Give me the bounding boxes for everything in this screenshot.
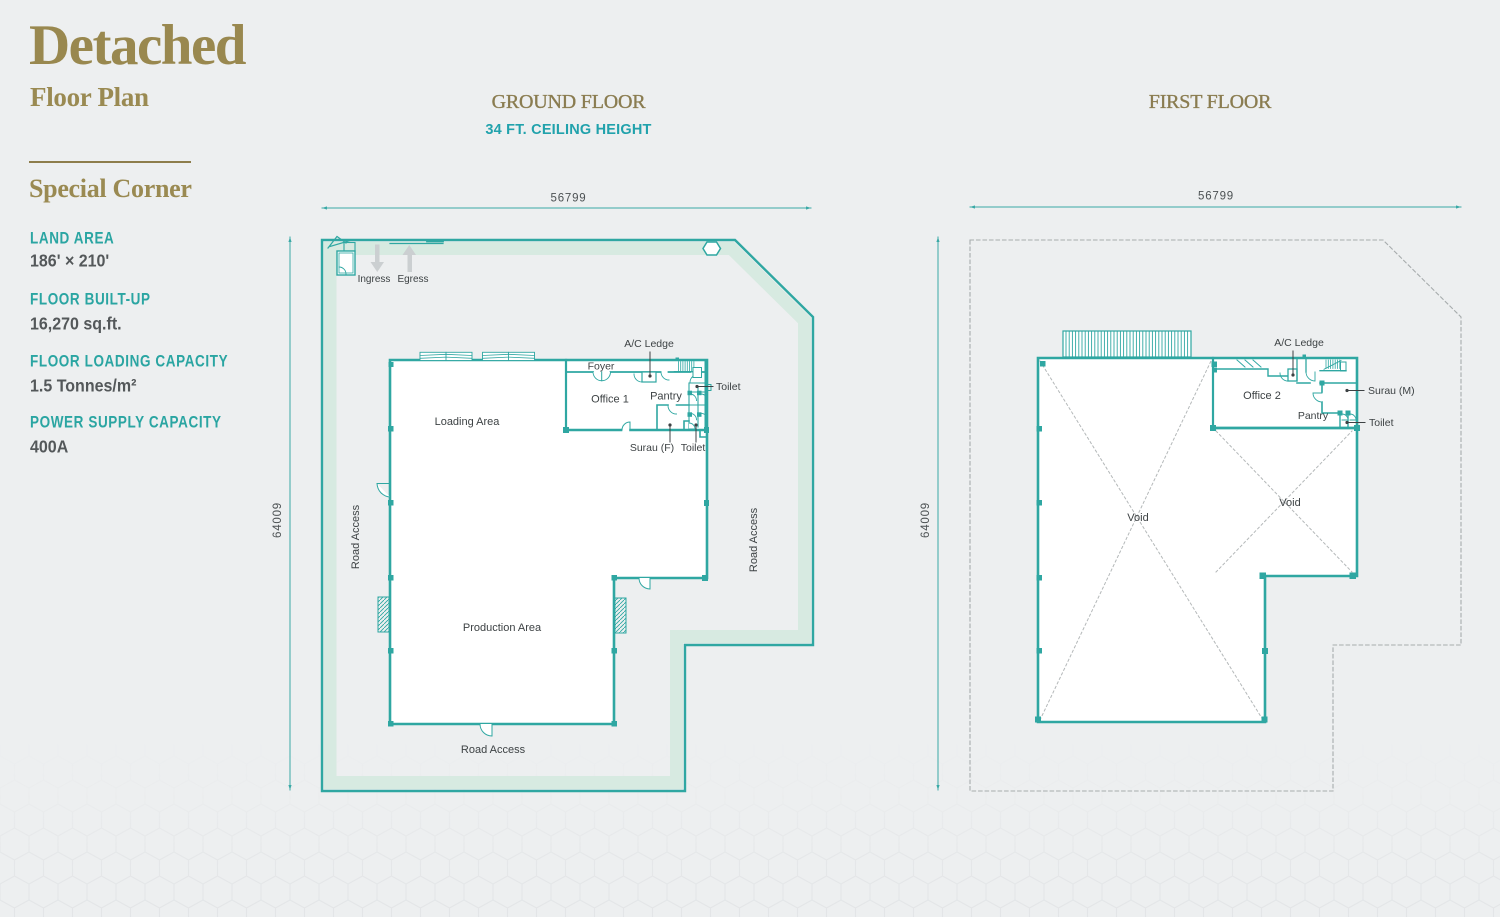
svg-text:A/C Ledge: A/C Ledge (1274, 337, 1324, 349)
svg-text:Ingress: Ingress (358, 274, 391, 285)
svg-text:Loading Area: Loading Area (435, 416, 501, 428)
svg-text:Egress: Egress (397, 274, 428, 285)
svg-text:Office 2: Office 2 (1243, 390, 1281, 402)
svg-text:56799: 56799 (1198, 191, 1234, 203)
svg-text:Pantry: Pantry (650, 391, 682, 403)
svg-text:Foyer: Foyer (588, 361, 615, 373)
svg-text:Toilet: Toilet (1369, 417, 1394, 429)
svg-text:Void: Void (1279, 497, 1300, 509)
svg-text:Office 1: Office 1 (591, 394, 629, 406)
svg-text:Surau (F): Surau (F) (630, 442, 674, 454)
svg-text:56799: 56799 (551, 193, 587, 205)
svg-text:Road Access: Road Access (461, 744, 526, 756)
svg-text:Toilet: Toilet (681, 442, 706, 454)
svg-text:64009: 64009 (272, 502, 284, 538)
svg-text:Road Access: Road Access (350, 504, 362, 569)
svg-text:Void: Void (1127, 512, 1148, 524)
svg-text:Pantry: Pantry (1298, 410, 1329, 422)
svg-text:Surau (M): Surau (M) (1368, 385, 1415, 397)
svg-text:Road Access: Road Access (748, 507, 760, 572)
svg-text:Production Area: Production Area (463, 622, 542, 634)
svg-text:Toilet: Toilet (716, 381, 741, 393)
svg-text:64009: 64009 (920, 502, 932, 538)
svg-text:A/C Ledge: A/C Ledge (624, 338, 674, 350)
